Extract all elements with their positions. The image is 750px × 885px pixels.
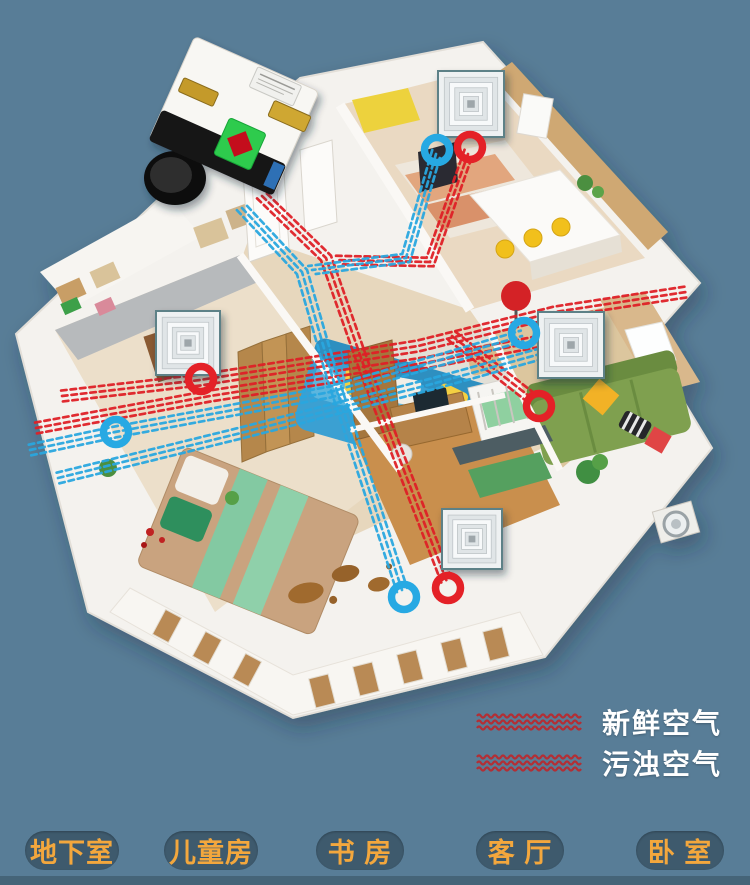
duct-port-inner: [150, 157, 192, 193]
room-button-study[interactable]: 书 房: [316, 831, 404, 870]
legend-item-dirty-air: 污浊空气: [476, 747, 746, 779]
bar-stool: [552, 218, 570, 236]
room-button-row: 地下室 儿童房 书 房 客 厅 卧 室: [0, 831, 750, 871]
apartment-model: [16, 42, 712, 718]
room-button-kids-room[interactable]: 儿童房: [164, 831, 258, 870]
bar-stool: [524, 229, 542, 247]
diffuser-right-bedroom: [538, 312, 604, 378]
diffuser-kitchen: [438, 71, 504, 137]
petal: [141, 542, 147, 548]
red-chair: [501, 281, 531, 311]
diffuser-study: [442, 509, 502, 569]
door: [300, 140, 337, 232]
legend: 新鲜空气 污浊空气: [476, 706, 746, 779]
fridge: [517, 94, 553, 139]
room-button-bedroom[interactable]: 卧 室: [636, 831, 724, 870]
dirty-air-swatch: [476, 752, 588, 774]
dirty-air-label: 污浊空气: [602, 743, 722, 783]
palm-plant: [592, 454, 608, 470]
room-button-living-room[interactable]: 客 厅: [476, 831, 564, 870]
room-button-basement[interactable]: 地下室: [25, 831, 119, 870]
legend-item-fresh-air: 新鲜空气: [476, 706, 746, 738]
plant: [225, 491, 239, 505]
fresh-air-label: 新鲜空气: [602, 702, 722, 742]
fresh-air-swatch: [476, 711, 588, 733]
page: 新鲜空气 污浊空气 地下室 儿童房 书 房 客 厅 卧 室: [0, 0, 750, 885]
washer-drum: [671, 519, 681, 529]
bottom-strip: [0, 876, 750, 885]
plant: [592, 186, 604, 198]
bar-stool: [496, 240, 514, 258]
plant: [577, 175, 593, 191]
petal: [146, 528, 154, 536]
petal: [159, 537, 165, 543]
diffuser-left-bedroom: [156, 311, 220, 375]
